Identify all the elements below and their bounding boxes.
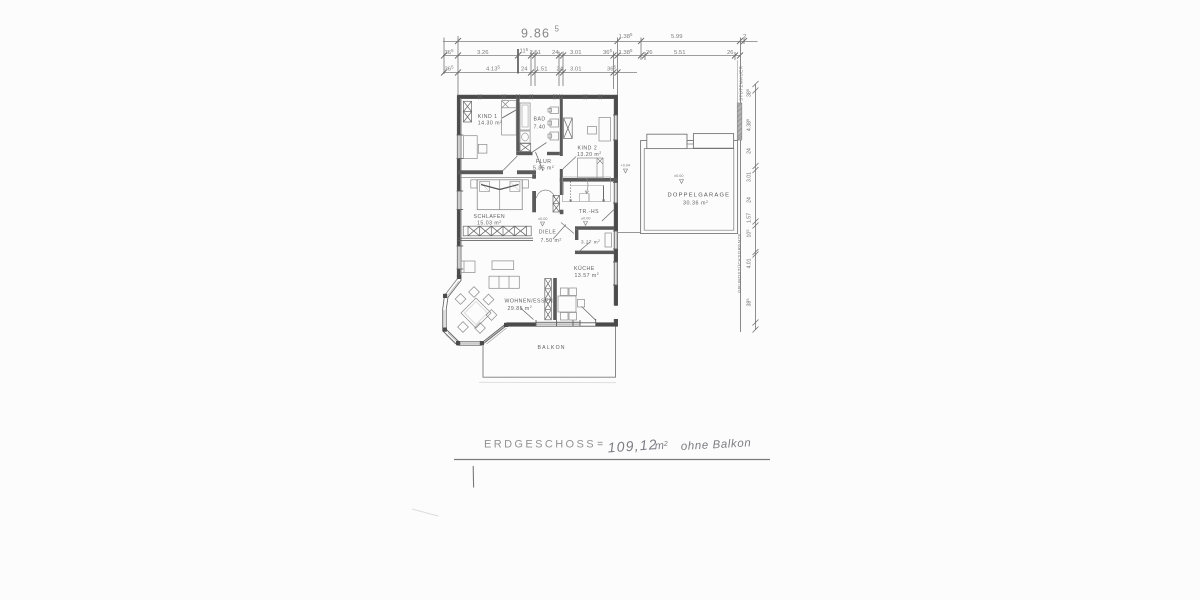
svg-text:13.57 m2: 13.57 m2 [575, 272, 600, 279]
svg-text:2.51: 2.51 [530, 50, 541, 56]
svg-text:5: 5 [555, 25, 560, 34]
svg-text:29.85 m2: 29.85 m2 [508, 305, 533, 312]
svg-text:KÜCHE: KÜCHE [574, 265, 595, 272]
svg-text:13.20 m2: 13.20 m2 [577, 151, 602, 158]
svg-text:5.99: 5.99 [671, 34, 682, 40]
svg-text:26: 26 [646, 50, 653, 56]
svg-text:TR.-HS: TR.-HS [579, 209, 599, 215]
svg-text:3.27 m2: 3.27 m2 [581, 239, 600, 244]
svg-text:STÜTZMAUER: STÜTZMAUER [738, 65, 744, 101]
svg-text:24: 24 [557, 66, 564, 72]
svg-text:3.26: 3.26 [477, 50, 489, 56]
svg-text:4.01: 4.01 [747, 258, 753, 268]
svg-text:+0.04: +0.04 [621, 164, 631, 168]
svg-text:BAD: BAD [534, 116, 546, 122]
svg-text:3.01: 3.01 [570, 50, 581, 56]
svg-text:1.51: 1.51 [536, 66, 547, 72]
svg-text:WOHNEN/ESSEN: WOHNEN/ESSEN [505, 298, 554, 304]
svg-text:24: 24 [521, 66, 528, 72]
svg-text:FLUR: FLUR [536, 159, 552, 165]
svg-text:±0.00: ±0.00 [674, 174, 683, 178]
svg-text:±0.00: ±0.00 [581, 217, 590, 221]
svg-text:KIND 1: KIND 1 [478, 114, 498, 120]
svg-text:ERDGESCHOSS: ERDGESCHOSS [484, 439, 596, 451]
svg-text:KIND 2: KIND 2 [578, 145, 598, 151]
svg-text:5.51: 5.51 [674, 50, 685, 56]
svg-text:=: = [597, 439, 603, 450]
svg-text:7.50 m2: 7.50 m2 [541, 237, 562, 244]
svg-text:5.85 m2: 5.85 m2 [533, 165, 554, 172]
svg-text:24: 24 [552, 50, 559, 56]
svg-text:±0.00: ±0.00 [538, 217, 547, 221]
svg-text:DOPPELGARAGE: DOPPELGARAGE [668, 193, 731, 199]
svg-text:7.40: 7.40 [534, 124, 546, 130]
svg-text:1.57: 1.57 [747, 213, 753, 223]
svg-text:3.01: 3.01 [570, 66, 581, 72]
svg-text:14.30 m2: 14.30 m2 [478, 120, 503, 127]
svg-text:DIELE: DIELE [539, 230, 557, 236]
svg-text:2: 2 [743, 34, 746, 40]
svg-text:24: 24 [747, 148, 753, 154]
svg-text:9.86: 9.86 [521, 27, 550, 41]
svg-text:BALKON: BALKON [538, 345, 566, 351]
svg-text:15.03 m2: 15.03 m2 [477, 220, 502, 227]
svg-text:GRUNDSTÜCKSGRENZE: GRUNDSTÜCKSGRENZE [736, 233, 742, 293]
svg-text:24: 24 [747, 197, 753, 203]
svg-text:30.36 m2: 30.36 m2 [683, 200, 708, 207]
svg-text:3.01: 3.01 [747, 172, 753, 182]
svg-text:26: 26 [727, 50, 734, 56]
